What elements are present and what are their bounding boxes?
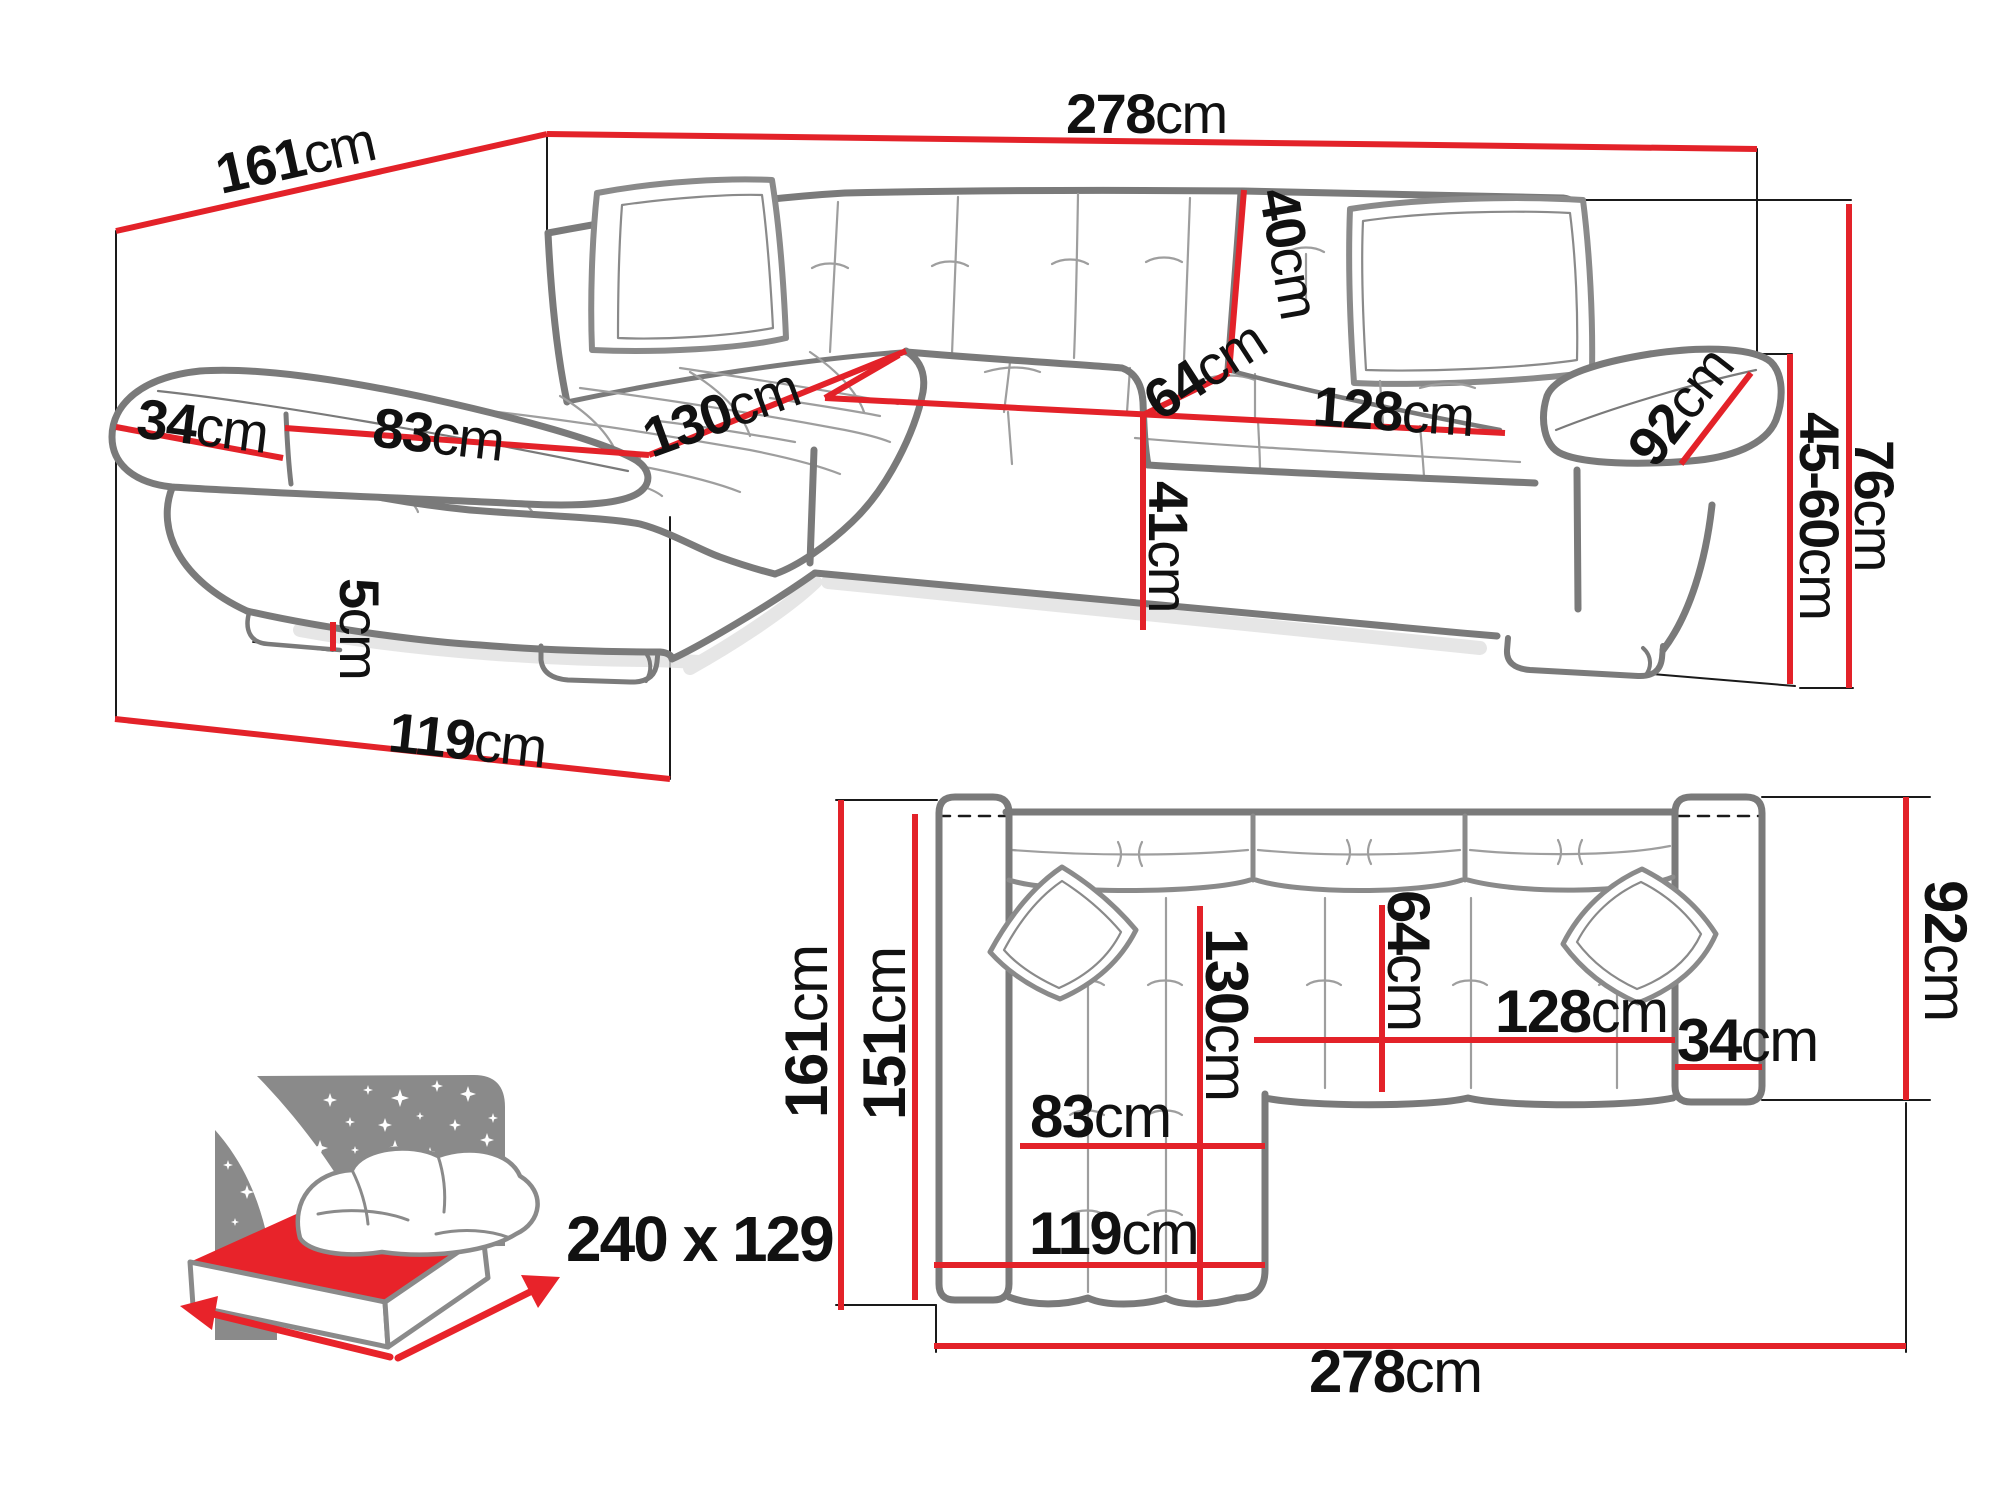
svg-text:130cm: 130cm [1193,928,1260,1101]
svg-text:34cm: 34cm [1677,1007,1818,1074]
svg-text:119cm: 119cm [1029,1200,1198,1267]
svg-text:151cm: 151cm [851,947,918,1120]
svg-text:128cm: 128cm [1495,978,1668,1045]
svg-text:45-60cm: 45-60cm [1788,412,1851,619]
svg-text:5cm: 5cm [328,578,391,679]
svg-text:83cm: 83cm [1030,1083,1171,1150]
svg-text:278cm: 278cm [1066,82,1227,145]
svg-text:278cm: 278cm [1309,1338,1482,1405]
svg-text:64cm: 64cm [1375,890,1442,1031]
svg-text:119cm: 119cm [386,700,549,779]
svg-text:41cm: 41cm [1137,481,1200,612]
svg-text:76cm: 76cm [1843,440,1906,571]
svg-text:92cm: 92cm [1912,880,1979,1021]
svg-text:161cm: 161cm [773,945,840,1118]
svg-text:240 x 129: 240 x 129 [566,1203,833,1275]
svg-text:128cm: 128cm [1311,374,1476,448]
